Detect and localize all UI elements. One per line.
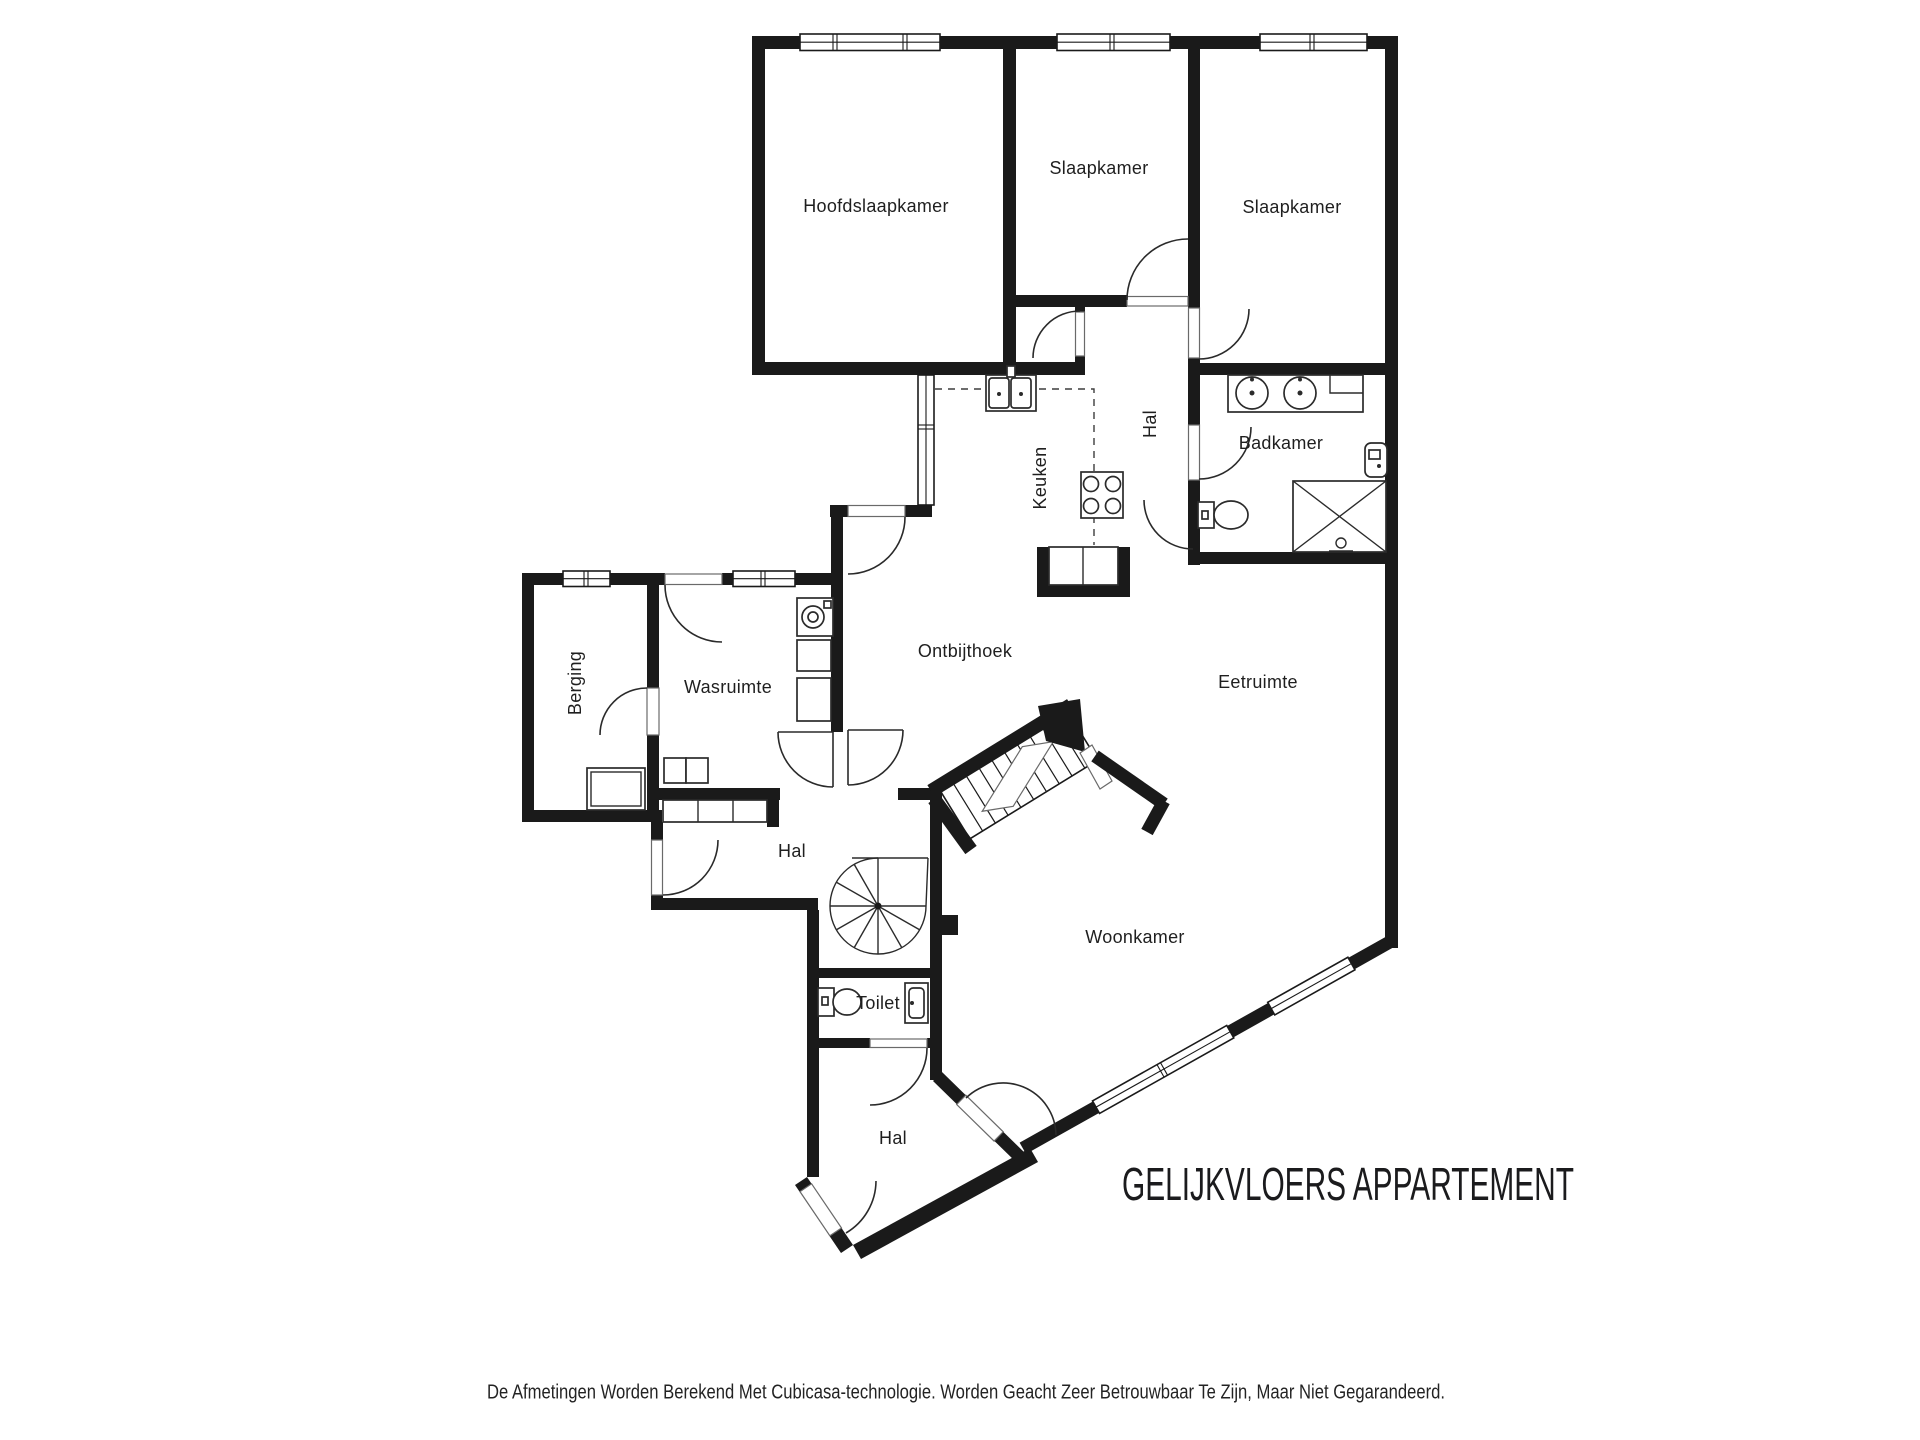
sink-icon xyxy=(905,983,928,1023)
wall xyxy=(752,36,765,375)
wall-diagonal xyxy=(1147,801,1164,832)
wall xyxy=(752,362,1085,375)
window xyxy=(1260,34,1367,51)
door-arc xyxy=(778,732,833,787)
window xyxy=(918,375,934,505)
room-label-hal-onder: Hal xyxy=(879,1128,907,1148)
stove-icon xyxy=(1081,472,1123,518)
window xyxy=(1268,957,1355,1015)
room-label-eetruimte: Eetruimte xyxy=(1218,672,1298,692)
window xyxy=(1057,34,1170,51)
room-label-badkamer: Badkamer xyxy=(1239,433,1323,453)
room-label-wasruimte: Wasruimte xyxy=(684,677,772,697)
door-leaf xyxy=(652,840,663,895)
wall xyxy=(658,788,780,800)
door-arc xyxy=(663,840,718,895)
room-label-toilet: Toilet xyxy=(856,993,900,1013)
spiral-center xyxy=(875,903,882,910)
window xyxy=(733,571,795,587)
door-leaf xyxy=(870,1039,927,1048)
wall xyxy=(522,810,662,822)
door-leaf xyxy=(957,1095,1004,1141)
wall xyxy=(722,573,733,585)
room-label-woonkamer: Woonkamer xyxy=(1085,927,1184,947)
door-arc xyxy=(665,585,722,642)
toilet-icon xyxy=(1198,501,1248,529)
wall xyxy=(930,820,942,1080)
room-label-hoofdslaapkamer: Hoofdslaapkamer xyxy=(803,196,949,216)
plan-title: GELIJKVLOERS APPARTEMENT xyxy=(1122,1158,1574,1210)
door-leaf xyxy=(1127,297,1188,307)
door-leaf xyxy=(1076,312,1085,356)
spiral-staircase xyxy=(830,858,928,954)
room-label-keuken: Keuken xyxy=(1030,447,1050,510)
wall-toilet-icon xyxy=(1365,443,1387,477)
wall xyxy=(940,36,1057,49)
window xyxy=(563,571,610,587)
wall xyxy=(1193,552,1386,564)
door-arc xyxy=(1144,500,1193,549)
kitchen-island xyxy=(1037,547,1130,597)
door-leaf xyxy=(1189,425,1200,480)
washing-machine-icon xyxy=(797,598,833,636)
wall xyxy=(651,822,663,840)
door-arc xyxy=(846,1181,876,1233)
storage-cabinet xyxy=(587,768,645,810)
interior-walls xyxy=(658,36,1386,827)
wall xyxy=(651,898,818,910)
room-labels: Hoofdslaapkamer Slaapkamer Slaapkamer Ha… xyxy=(565,158,1342,1148)
wall xyxy=(1188,36,1200,308)
door-arc xyxy=(1127,239,1188,300)
room-label-berging: Berging xyxy=(565,651,585,715)
wall xyxy=(905,505,932,517)
wall xyxy=(795,573,843,585)
window xyxy=(800,34,940,51)
kitchen-counter-dashed xyxy=(935,389,1094,545)
door-arc xyxy=(848,730,903,785)
window-band-diagonal xyxy=(1019,934,1396,1154)
door-arc xyxy=(1199,309,1249,359)
wall xyxy=(1227,1003,1274,1037)
wall xyxy=(818,968,940,978)
door-leaf xyxy=(665,574,722,585)
spiral-landing xyxy=(926,858,928,906)
cabinet xyxy=(797,640,831,671)
wall xyxy=(610,573,665,585)
floorplan-canvas: Hoofdslaapkamer Slaapkamer Slaapkamer Ha… xyxy=(0,0,1920,1440)
wall-diagonal xyxy=(853,1148,1038,1259)
cabinet xyxy=(664,758,686,783)
wall xyxy=(930,915,958,935)
wall xyxy=(1075,356,1085,374)
wall xyxy=(647,735,659,810)
room-label-hal-boven: Hal xyxy=(1140,410,1160,438)
door-arc xyxy=(848,517,905,574)
wall xyxy=(1170,36,1260,49)
wall xyxy=(1193,363,1386,375)
toilet-icon xyxy=(818,988,861,1016)
door-leaf xyxy=(800,1184,842,1236)
room-label-slaapkamer-right: Slaapkamer xyxy=(1242,197,1341,217)
straight-staircase xyxy=(927,699,1164,850)
cabinet xyxy=(686,758,708,783)
window xyxy=(1093,1025,1234,1113)
room-label-ontbijthoek: Ontbijthoek xyxy=(918,641,1013,661)
wall xyxy=(1075,296,1085,312)
door-leaf xyxy=(647,688,659,735)
door-arc xyxy=(870,1048,927,1105)
wall xyxy=(1020,1101,1100,1154)
wall xyxy=(1003,36,1016,375)
wall xyxy=(1003,295,1127,307)
shower-icon xyxy=(1293,481,1386,552)
disclaimer-text: De Afmetingen Worden Berekend Met Cubica… xyxy=(487,1381,1445,1404)
wall xyxy=(1385,36,1398,948)
door-arc xyxy=(600,688,647,735)
door-leaf xyxy=(848,506,905,517)
room-label-slaapkamer-middle: Slaapkamer xyxy=(1049,158,1148,178)
wall xyxy=(767,792,779,827)
wall xyxy=(807,1038,870,1048)
door-arc xyxy=(1033,311,1080,358)
room-label-hal-midden: Hal xyxy=(778,841,806,861)
bathroom-vanity-icon xyxy=(1228,375,1363,412)
wall xyxy=(1348,935,1395,969)
hall-cabinets xyxy=(663,800,767,822)
wall xyxy=(522,573,534,822)
door-leaf xyxy=(1189,308,1200,358)
wall xyxy=(647,585,659,688)
cabinet xyxy=(797,678,831,721)
